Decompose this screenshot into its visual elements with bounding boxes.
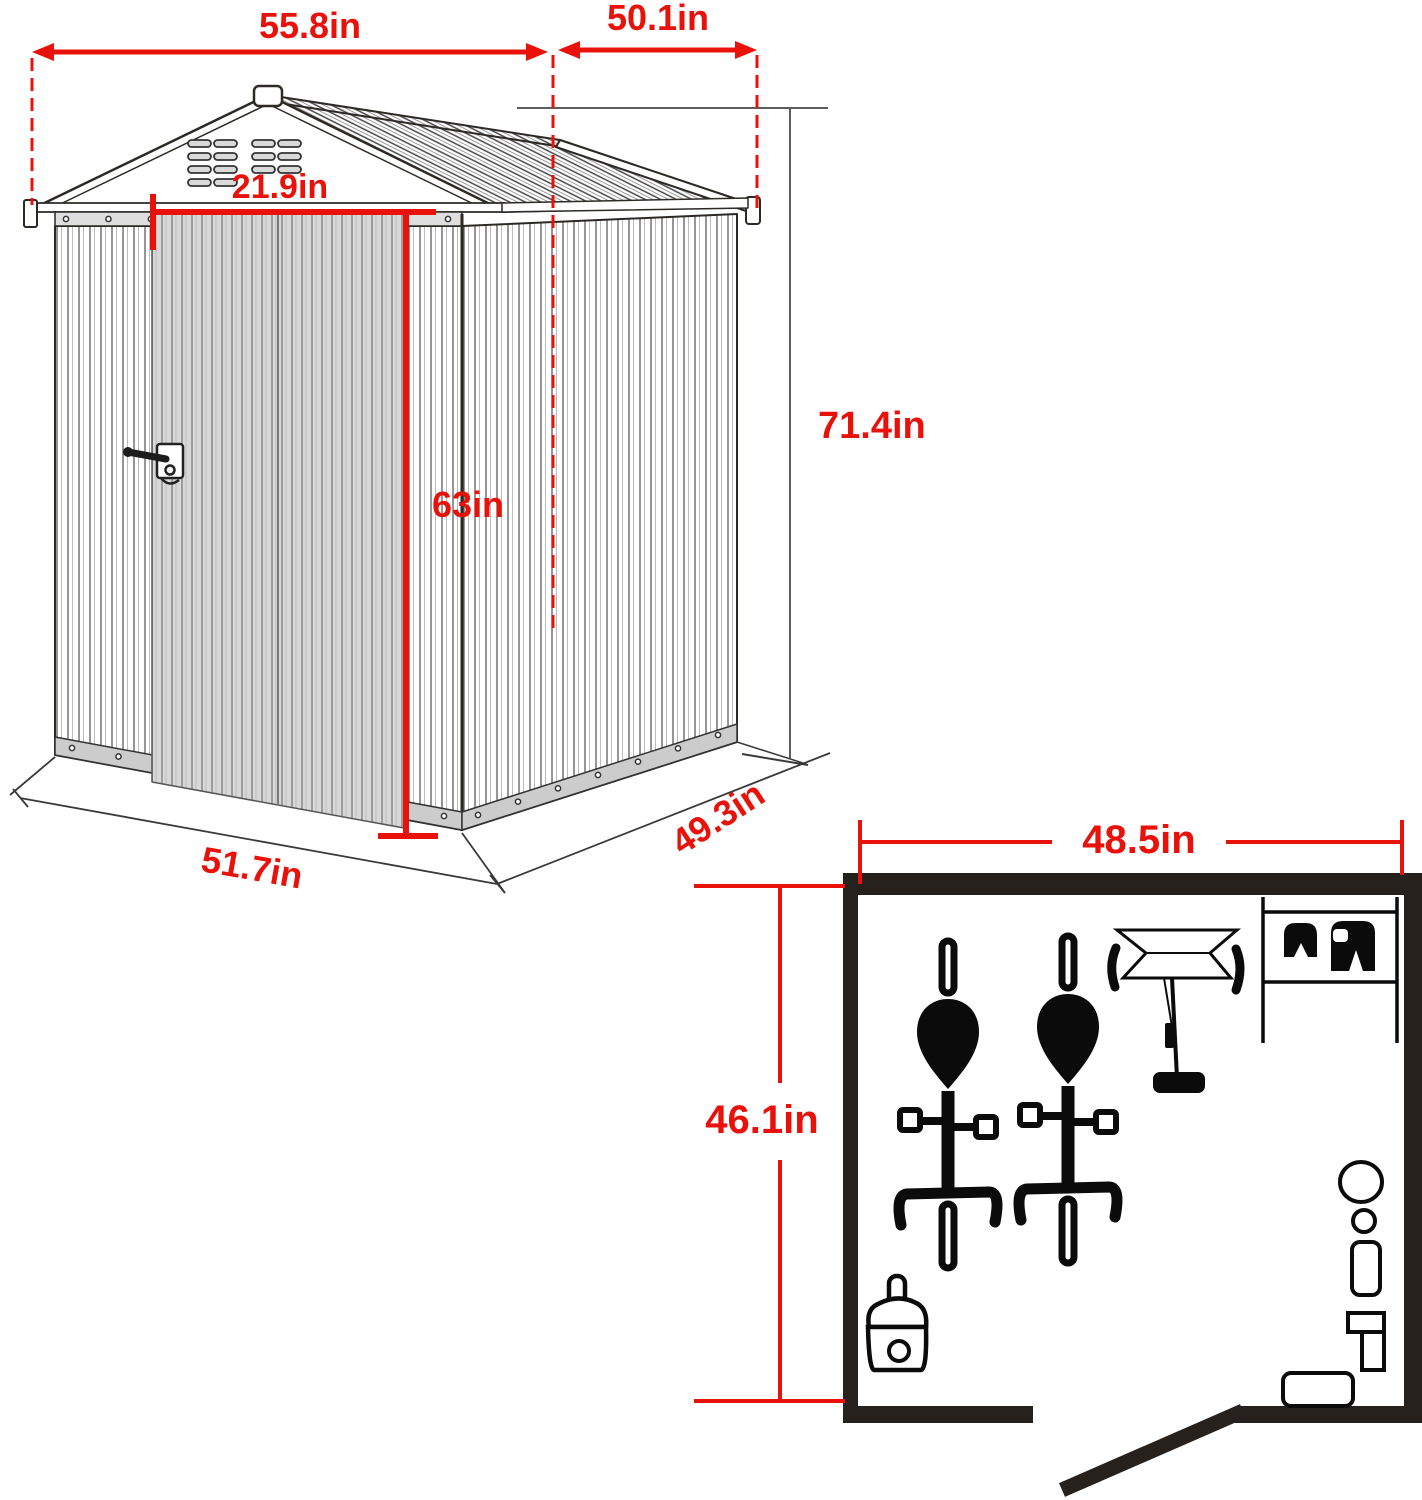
rivet-dot — [445, 216, 450, 221]
diagram-canvas: 55.8in 50.1in 21.9in 63in 71.4in 51.7in — [0, 0, 1422, 1500]
interior-depth-label: 46.1in — [705, 1098, 818, 1142]
dimension-interior-depth: 46.1in — [694, 886, 845, 1401]
rivet-dot — [63, 216, 68, 221]
round-table-icon — [1340, 1162, 1382, 1202]
shed-elevation-drawing: 55.8in 50.1in 21.9in 63in 71.4in 51.7in — [10, 0, 926, 897]
bicycle-icon — [899, 941, 997, 1268]
mallet-icon — [1348, 1313, 1384, 1370]
arrowhead-left-icon — [32, 43, 54, 61]
rivet-dot — [595, 772, 600, 777]
rivet-dot — [106, 216, 111, 221]
arrowhead-right-icon — [735, 41, 757, 59]
boot-icon — [1331, 921, 1375, 971]
door-height-label: 63in — [432, 484, 504, 525]
door-width-label: 21.9in — [232, 168, 328, 206]
shed-door — [123, 194, 438, 838]
paint-bucket-icon — [868, 1276, 926, 1370]
product-dimension-diagram: 55.8in 50.1in 21.9in 63in 71.4in 51.7in — [0, 0, 1422, 1500]
interior-width-label: 48.5in — [1082, 818, 1195, 862]
storage-box-icon — [1352, 1242, 1380, 1295]
rivet-dot — [441, 813, 446, 818]
rivet-dot — [675, 746, 680, 751]
floor-plan: 48.5in 46.1in — [694, 818, 1422, 1490]
base-depth-label: 49.3in — [664, 773, 772, 863]
rivet-dot — [635, 759, 640, 764]
rivet-dot — [515, 799, 520, 804]
rivet-dot — [69, 745, 74, 750]
rivet-dot — [715, 732, 720, 737]
rivet-dot — [555, 786, 560, 791]
lawn-mower-icon — [1112, 930, 1240, 1093]
wall-shelf-icon — [1263, 897, 1397, 1043]
arrowhead-left-icon — [558, 41, 580, 59]
rivet-dot — [116, 754, 121, 759]
stool-icon — [1353, 1210, 1375, 1232]
total-height-label: 71.4in — [818, 405, 926, 447]
roof-depth-label: 50.1in — [607, 0, 709, 38]
rivet-dot — [475, 812, 480, 817]
roof-width-label: 55.8in — [259, 5, 361, 46]
bench-icon — [1283, 1373, 1353, 1406]
arrowhead-right-icon — [526, 43, 548, 61]
helmet-icon — [1284, 923, 1317, 957]
open-door-leaf-icon — [1062, 1411, 1243, 1490]
bicycle-icon — [1019, 936, 1117, 1263]
